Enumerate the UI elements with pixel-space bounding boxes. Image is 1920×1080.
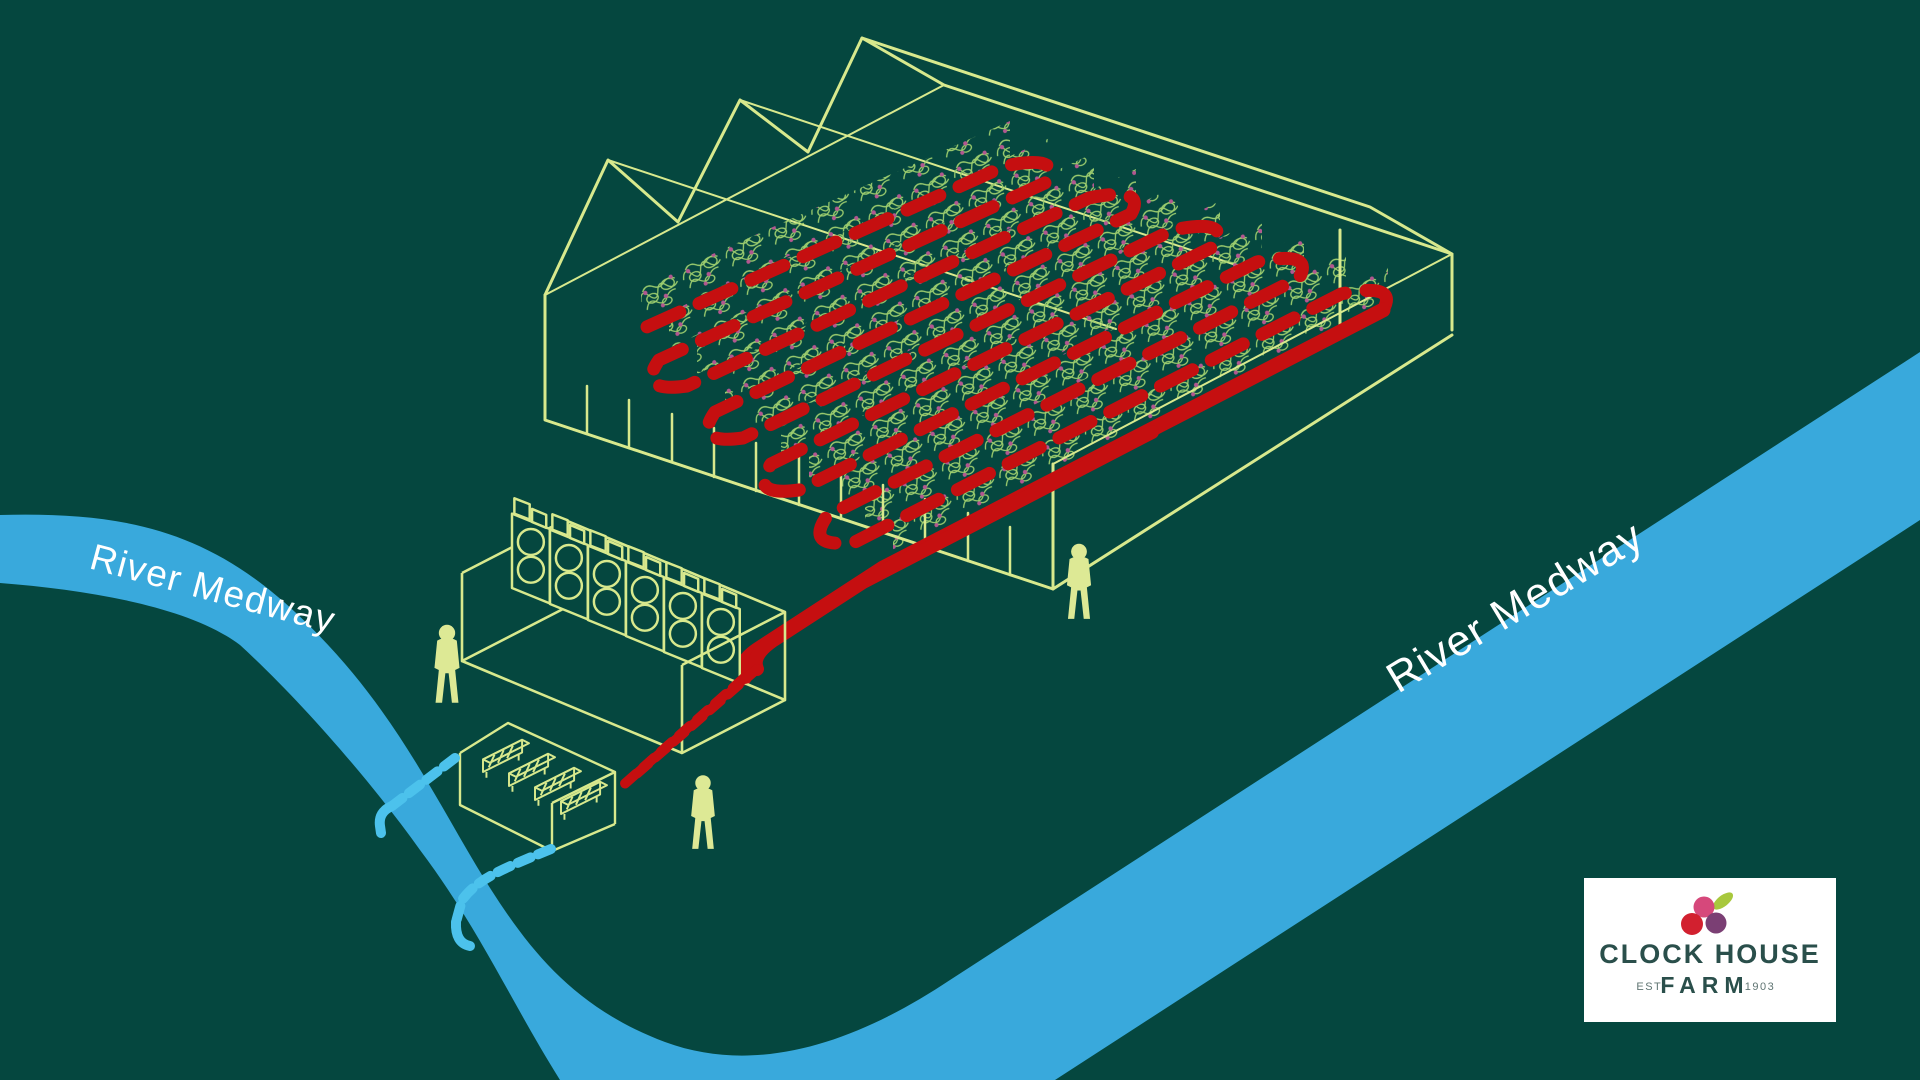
heat-pump-unit <box>626 546 664 651</box>
berry-red-icon <box>1681 913 1703 935</box>
clock-house-farm-logo: CLOCK HOUSE EST. FARM 1903 <box>1584 878 1836 1022</box>
heat-pump-unit <box>664 562 702 667</box>
berry-purple-icon <box>1706 913 1727 934</box>
diagram-canvas: River Medway River Medway <box>0 0 1920 1080</box>
heat-pump-unit <box>550 514 588 619</box>
logo-farm-label: FARM <box>1660 972 1749 998</box>
heat-pump-unit <box>512 498 550 603</box>
heat-pump-unit <box>702 578 740 683</box>
logo-title: CLOCK HOUSE <box>1599 939 1821 969</box>
logo-year: 1903 <box>1745 981 1775 993</box>
heat-pump-unit <box>588 530 626 635</box>
